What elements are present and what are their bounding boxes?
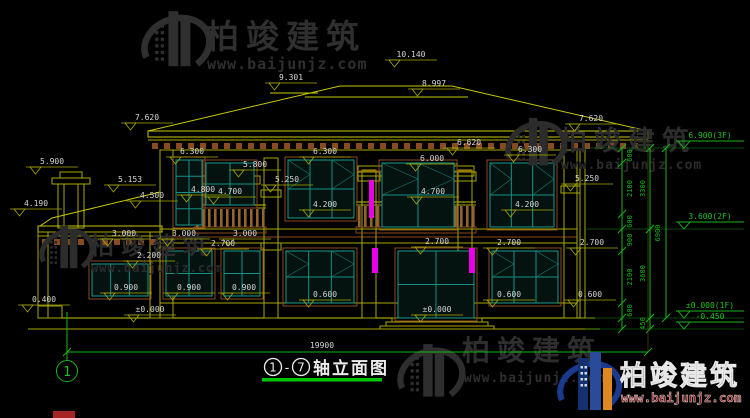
dentil	[164, 143, 170, 149]
vchain-label: 600	[626, 149, 634, 162]
svg-text:6.000: 6.000	[420, 154, 444, 163]
svg-text:9.301: 9.301	[279, 73, 303, 82]
level-flag: -0.450	[696, 312, 725, 321]
svg-text:3.000: 3.000	[233, 229, 257, 238]
vchain-label: 2100	[626, 269, 634, 286]
baluster	[232, 209, 235, 227]
title-separator: -	[285, 361, 290, 376]
level-flag: 3.600(2F)	[688, 212, 731, 221]
svg-text:5.900: 5.900	[40, 157, 64, 166]
overall-width-label: 19900	[310, 341, 334, 350]
baluster	[250, 209, 253, 227]
svg-text:10.140: 10.140	[397, 50, 426, 59]
vchain-label: 600	[626, 304, 634, 317]
dentil	[78, 239, 84, 245]
svg-text:6.620: 6.620	[457, 138, 481, 147]
watermark-url: www.baijunjz.com	[207, 55, 368, 73]
dentil	[248, 143, 254, 149]
svg-text:0.600: 0.600	[313, 290, 337, 299]
dentil	[500, 143, 506, 149]
svg-text:5.153: 5.153	[118, 175, 142, 184]
svg-text:5.250: 5.250	[275, 175, 299, 184]
dentil	[260, 143, 266, 149]
dentil	[392, 143, 398, 149]
dentil	[236, 143, 242, 149]
svg-text:3.000: 3.000	[172, 229, 196, 238]
baluster	[358, 206, 361, 227]
vchain-label: 600	[626, 215, 634, 228]
title-axis-from: 1	[269, 361, 277, 375]
elevation-drawing: 柏竣建筑 www.baijunjz.com 柏竣建筑 www.baijunjz.…	[0, 0, 750, 418]
svg-text:4.700: 4.700	[218, 187, 242, 196]
logo-brand-text: 柏竣建筑	[620, 360, 740, 392]
svg-text:±0.000: ±0.000	[136, 305, 165, 314]
level-flag: ±0.000(1F)	[686, 301, 734, 310]
svg-text:4.200: 4.200	[313, 200, 337, 209]
vchain-label: 3300	[639, 180, 647, 197]
dentil	[368, 143, 374, 149]
dentil	[380, 143, 386, 149]
svg-text:2.700: 2.700	[497, 238, 521, 247]
svg-text:7.620: 7.620	[579, 114, 603, 123]
vchain-label: 450	[639, 317, 647, 330]
svg-text:3.000: 3.000	[112, 229, 136, 238]
baluster	[244, 209, 247, 227]
dentil	[212, 143, 218, 149]
baluster	[238, 209, 241, 227]
dentil	[152, 143, 158, 149]
dentil	[224, 143, 230, 149]
dentil	[404, 143, 410, 149]
baluster	[256, 209, 259, 227]
svg-text:0.400: 0.400	[32, 295, 56, 304]
svg-text:4.500: 4.500	[140, 191, 164, 200]
drawing-title: 轴立面图	[313, 358, 389, 379]
baluster	[208, 209, 211, 227]
baluster	[460, 206, 463, 227]
level-flag: 6.900(3F)	[688, 131, 731, 140]
svg-text:6.300: 6.300	[180, 147, 204, 156]
red-corner-mark	[53, 411, 75, 418]
watermark-url: www.baijunjz.com	[91, 261, 223, 275]
logo-url-text: www.baijunjz.com	[621, 390, 742, 405]
vchain-label: 900	[626, 234, 634, 247]
watermark-brand: 柏竣建筑	[206, 17, 366, 56]
brand-logo-color: 柏竣建筑 www.baijunjz.com	[560, 352, 742, 410]
svg-text:0.900: 0.900	[232, 283, 256, 292]
svg-text:4.800: 4.800	[191, 185, 215, 194]
svg-text:2.200: 2.200	[137, 251, 161, 260]
vchain-total: 6900	[654, 225, 662, 242]
svg-text:0.600: 0.600	[497, 290, 521, 299]
dentil	[416, 143, 422, 149]
dentil	[344, 143, 350, 149]
svg-text:2.700: 2.700	[211, 239, 235, 248]
svg-text:4.190: 4.190	[24, 199, 48, 208]
title-underline	[262, 378, 382, 382]
svg-text:6.300: 6.300	[518, 145, 542, 154]
svg-text:±0.000: ±0.000	[423, 305, 452, 314]
watermark-top: 柏竣建筑 www.baijunjz.com	[145, 11, 368, 73]
baluster	[220, 209, 223, 227]
dentil	[428, 143, 434, 149]
svg-text:2.700: 2.700	[580, 238, 604, 247]
dentil	[284, 143, 290, 149]
svg-text:0.600: 0.600	[578, 290, 602, 299]
svg-text:4.200: 4.200	[515, 200, 539, 209]
background	[0, 0, 750, 418]
baluster	[472, 206, 475, 227]
svg-text:8.997: 8.997	[422, 79, 446, 88]
title-axis-to: 7	[297, 361, 305, 375]
baluster	[226, 209, 229, 227]
baluster	[376, 206, 379, 227]
dentil	[296, 143, 302, 149]
dentil	[548, 143, 554, 149]
svg-text:5.800: 5.800	[243, 160, 267, 169]
wall-lamp	[369, 180, 374, 218]
baluster	[364, 206, 367, 227]
svg-text:5.250: 5.250	[575, 174, 599, 183]
svg-text:7.620: 7.620	[135, 113, 159, 122]
axis-bubble-number: 1	[63, 365, 71, 380]
wall-lamp	[469, 248, 475, 273]
baluster	[214, 209, 217, 227]
dentil	[356, 143, 362, 149]
vchain-label: 3600	[639, 265, 647, 282]
wall-lamp	[372, 248, 378, 273]
window	[285, 157, 357, 221]
cad-elevation-screenshot: 柏竣建筑 www.baijunjz.com 柏竣建筑 www.baijunjz.…	[0, 0, 750, 418]
window	[379, 160, 457, 230]
svg-text:0.900: 0.900	[177, 283, 201, 292]
dentil	[272, 143, 278, 149]
baluster	[262, 209, 265, 227]
svg-text:0.900: 0.900	[114, 283, 138, 292]
svg-text:6.300: 6.300	[313, 147, 337, 156]
baluster	[466, 206, 469, 227]
window	[487, 160, 557, 230]
vchain-label: 2100	[626, 180, 634, 197]
svg-text:2.700: 2.700	[425, 237, 449, 246]
svg-text:4.700: 4.700	[421, 187, 445, 196]
